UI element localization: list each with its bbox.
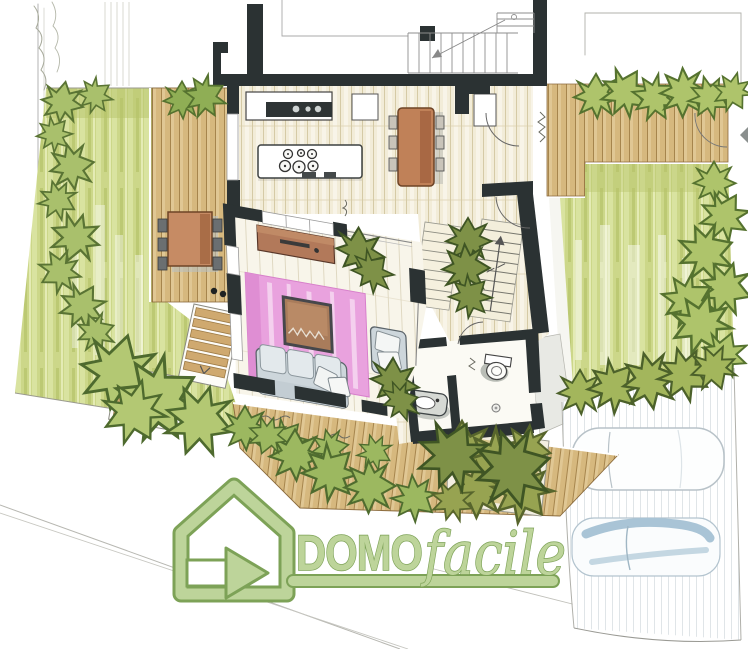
coffee-table bbox=[283, 297, 332, 352]
driveway bbox=[562, 368, 741, 642]
door-handle-dot bbox=[220, 291, 226, 297]
sketch-hatch-strip bbox=[104, 2, 134, 86]
window-left-lower bbox=[230, 313, 243, 361]
kitchen-island bbox=[258, 145, 362, 181]
edge-arrow-marker bbox=[740, 127, 748, 143]
cooktop-burners bbox=[280, 150, 319, 174]
pergola-column bbox=[420, 26, 435, 41]
door-handle-dot bbox=[211, 288, 217, 294]
fridge-cabinet bbox=[474, 94, 496, 126]
window-left-upper bbox=[226, 245, 239, 275]
living-room bbox=[223, 202, 431, 430]
window-left bbox=[227, 114, 238, 180]
car-bottom bbox=[572, 518, 720, 576]
brand-text-facile: facile bbox=[421, 519, 566, 589]
brand-text-domo: DOMO bbox=[296, 525, 422, 581]
floor-plan-svg: DOMO facile bbox=[0, 0, 748, 649]
outdoor-dining-table bbox=[158, 212, 222, 272]
house-arrow-icon bbox=[181, 486, 287, 598]
dining-table bbox=[389, 108, 444, 186]
exterior-staircase bbox=[408, 13, 534, 73]
arrow-tail bbox=[187, 560, 226, 586]
scanned-floor-plan: DOMO facile bbox=[0, 0, 748, 649]
